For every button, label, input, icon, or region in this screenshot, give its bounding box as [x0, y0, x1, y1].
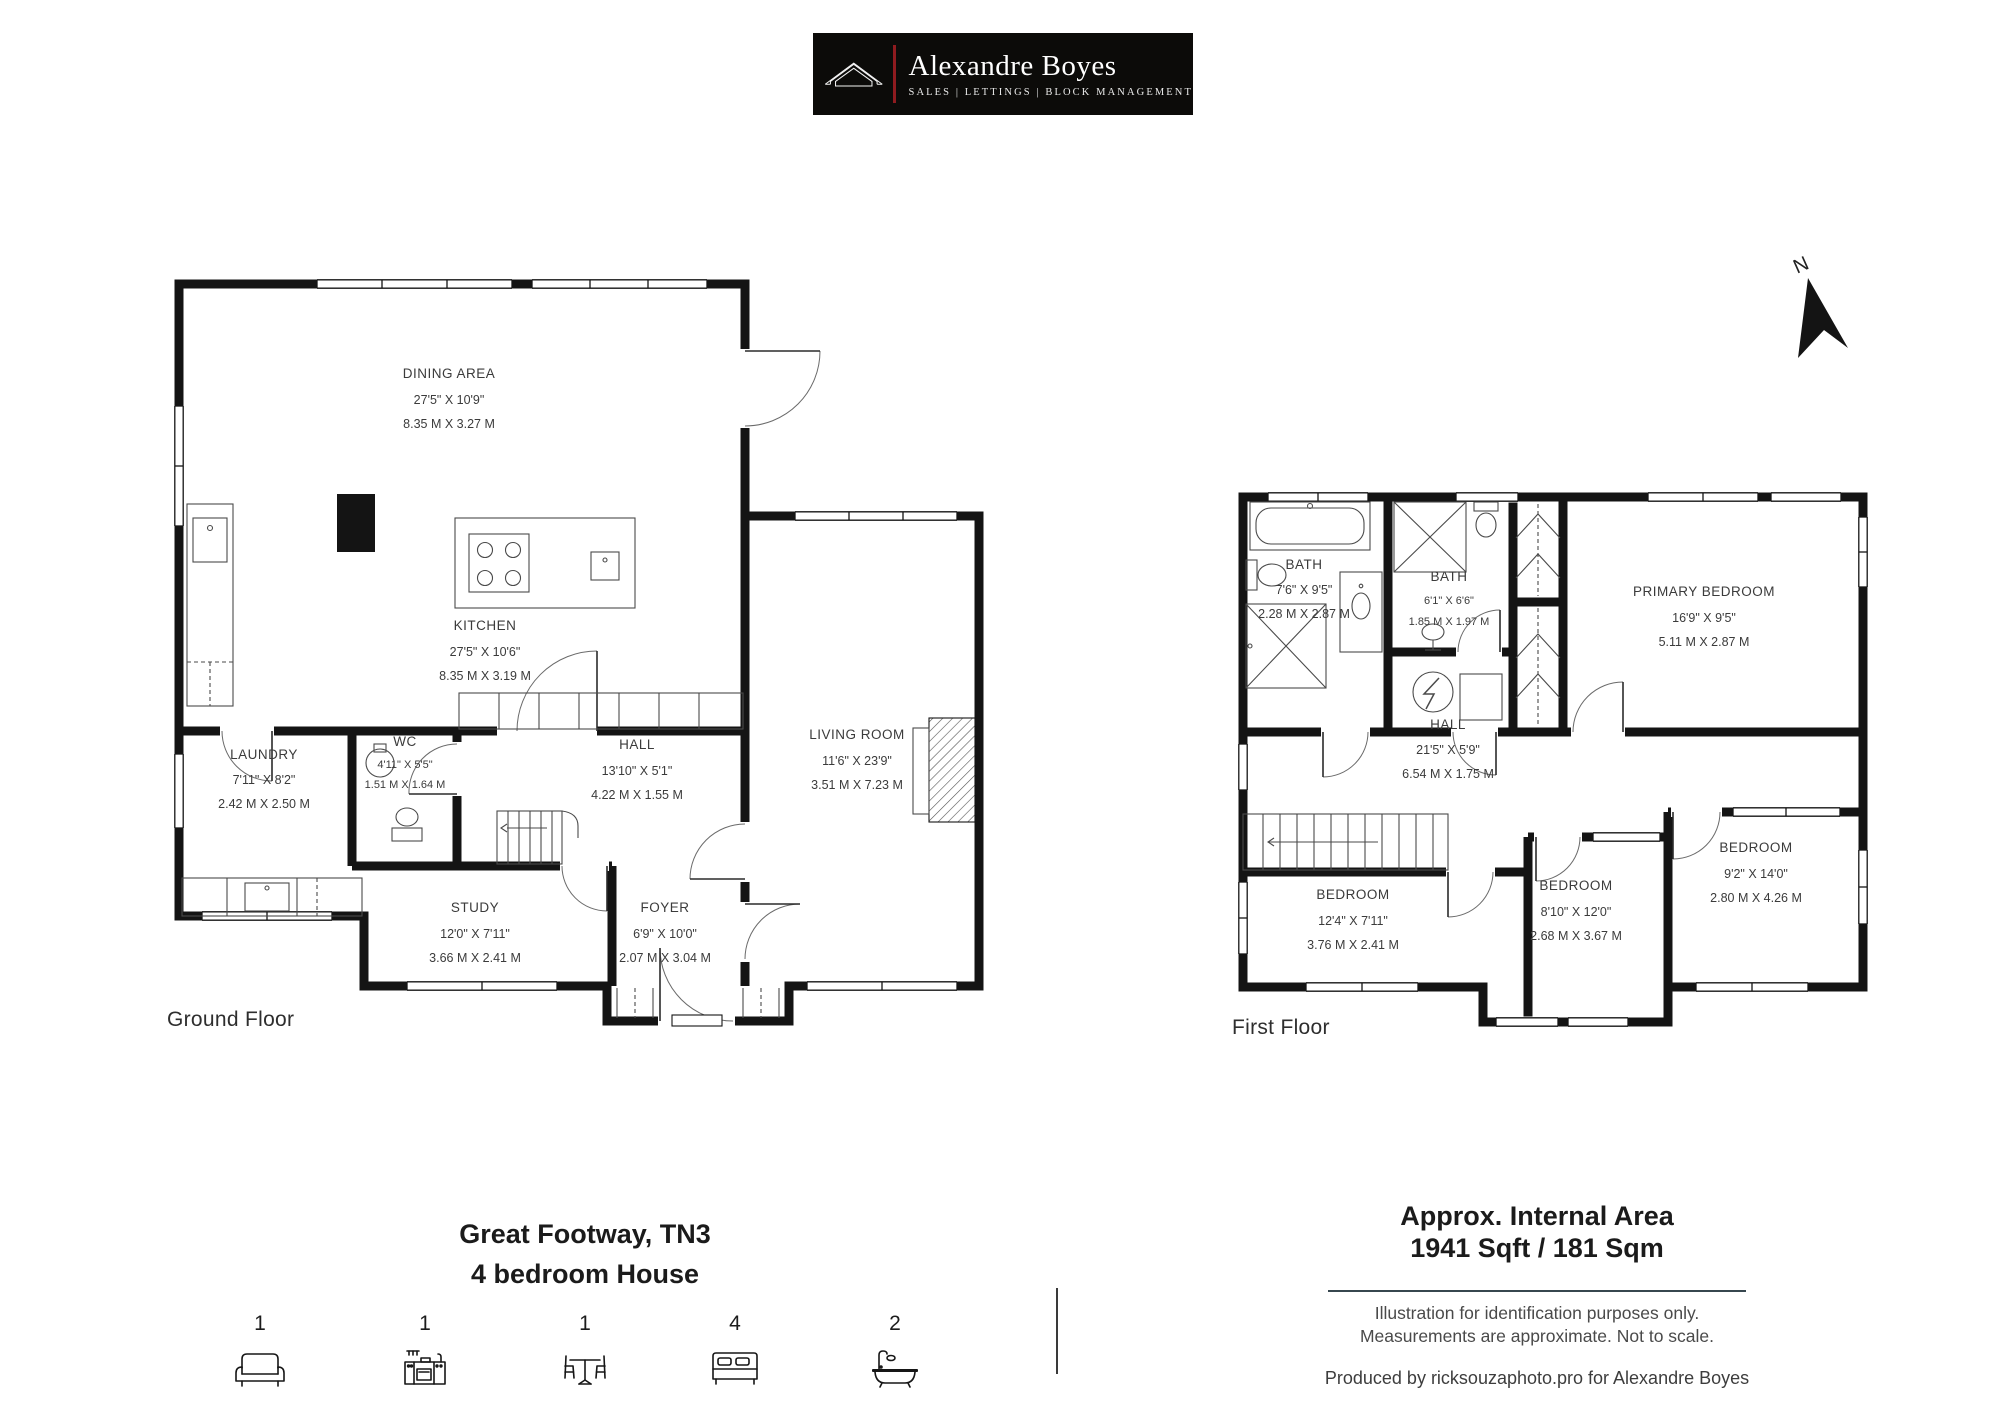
count-bathrooms: 2: [847, 1312, 943, 1397]
svg-text:11'6" X 23'9": 11'6" X 23'9": [822, 754, 892, 768]
property-title: Great Footway, TN3 4 bedroom House: [335, 1214, 835, 1294]
svg-text:PRIMARY BEDROOM: PRIMARY BEDROOM: [1633, 584, 1775, 599]
svg-text:BEDROOM: BEDROOM: [1316, 887, 1389, 902]
svg-text:HALL: HALL: [1430, 717, 1466, 732]
count-dining: 1: [537, 1312, 633, 1397]
svg-text:2.42 M X 2.50 M: 2.42 M X 2.50 M: [218, 797, 310, 811]
svg-text:WC: WC: [393, 734, 417, 749]
roof-icon: [823, 43, 885, 105]
disclaimer-line1: Illustration for identification purposes…: [1277, 1302, 1797, 1325]
svg-text:6'1" X 6'6": 6'1" X 6'6": [1424, 595, 1474, 607]
svg-text:HALL: HALL: [619, 737, 655, 752]
chimney-stub: [337, 494, 375, 552]
area-block: Approx. Internal Area 1941 Sqft / 181 Sq…: [1277, 1200, 1797, 1389]
floorplan-page: Alexandre Boyes SALES | LETTINGS | BLOCK…: [0, 0, 2000, 1414]
svg-text:7'11" X 8'2": 7'11" X 8'2": [233, 773, 296, 787]
svg-text:BATH: BATH: [1430, 569, 1467, 584]
svg-text:BATH: BATH: [1285, 557, 1322, 572]
svg-text:3.76 M X 2.41 M: 3.76 M X 2.41 M: [1307, 938, 1399, 952]
kitchen-icon: [397, 1346, 453, 1392]
first-floor-plan: BATH 7'6" X 9'5" 2.28 M X 2.87 M BATH 6'…: [1228, 482, 1878, 1042]
svg-text:21'5" X 5'9": 21'5" X 5'9": [1416, 743, 1480, 757]
kitchen-count: 1: [377, 1312, 473, 1336]
room-label-bath-2: BATH 6'1" X 6'6" 1.85 M X 1.97 M: [1409, 569, 1490, 628]
count-kitchen: 1: [377, 1312, 473, 1397]
svg-text:LIVING ROOM: LIVING ROOM: [809, 727, 905, 742]
room-label-hall-first: HALL 21'5" X 5'9" 6.54 M X 1.75 M: [1402, 717, 1494, 781]
bed-icon: [707, 1346, 763, 1392]
svg-text:1.51 M X 1.64 M: 1.51 M X 1.64 M: [365, 779, 446, 791]
brand-name: Alexandre Boyes: [909, 50, 1194, 83]
ground-room-labels: DINING AREA 27'5" X 10'9" 8.35 M X 3.27 …: [218, 366, 905, 965]
svg-text:LAUNDRY: LAUNDRY: [230, 747, 298, 762]
ground-doors: [220, 349, 820, 1026]
dining-icon: [557, 1346, 613, 1392]
room-label-primary-bedroom: PRIMARY BEDROOM 16'9" X 9'5" 5.11 M X 2.…: [1633, 584, 1775, 649]
svg-text:2.68 M X 3.67 M: 2.68 M X 3.67 M: [1530, 929, 1622, 943]
svg-text:6'9" X 10'0": 6'9" X 10'0": [633, 927, 697, 941]
room-label-bedroom-left: BEDROOM 12'4" X 7'11" 3.76 M X 2.41 M: [1307, 887, 1399, 952]
svg-text:27'5" X 10'6": 27'5" X 10'6": [450, 645, 521, 659]
svg-text:4.22 M X 1.55 M: 4.22 M X 1.55 M: [591, 788, 683, 802]
svg-text:8.35 M X 3.19 M: 8.35 M X 3.19 M: [439, 669, 531, 683]
svg-text:BEDROOM: BEDROOM: [1539, 878, 1612, 893]
room-label-foyer: FOYER 6'9" X 10'0" 2.07 M X 3.04 M: [619, 900, 711, 965]
svg-text:FOYER: FOYER: [640, 900, 689, 915]
dining-count: 1: [537, 1312, 633, 1336]
room-label-laundry: LAUNDRY 7'11" X 8'2" 2.42 M X 2.50 M: [218, 747, 310, 811]
ground-floor-label: Ground Floor: [167, 1008, 294, 1032]
sofa-icon: [232, 1346, 288, 1392]
room-label-living-room: LIVING ROOM 11'6" X 23'9" 3.51 M X 7.23 …: [809, 727, 905, 792]
svg-text:2.80 M X 4.26 M: 2.80 M X 4.26 M: [1710, 891, 1802, 905]
room-label-bedroom-center: BEDROOM 8'10" X 12'0" 2.68 M X 3.67 M: [1530, 878, 1622, 943]
svg-text:7'6" X 9'5": 7'6" X 9'5": [1276, 583, 1333, 597]
area-rule: [1328, 1290, 1746, 1292]
svg-text:12'4" X 7'11": 12'4" X 7'11": [1318, 914, 1388, 928]
area-value: 1941 Sqft / 181 Sqm: [1277, 1232, 1797, 1264]
svg-text:2.07 M X 3.04 M: 2.07 M X 3.04 M: [619, 951, 711, 965]
count-bedrooms: 4: [687, 1312, 783, 1397]
svg-text:12'0" X 7'11": 12'0" X 7'11": [440, 927, 510, 941]
svg-text:4'11" X 5'5": 4'11" X 5'5": [377, 759, 432, 771]
logo-text: Alexandre Boyes SALES | LETTINGS | BLOCK…: [909, 50, 1194, 98]
svg-text:27'5" X 10'9": 27'5" X 10'9": [414, 393, 485, 407]
north-label: N: [1790, 253, 1812, 279]
svg-text:3.66 M X 2.41 M: 3.66 M X 2.41 M: [429, 951, 521, 965]
reception-count: 1: [212, 1312, 308, 1336]
svg-text:13'10" X 5'1": 13'10" X 5'1": [602, 764, 673, 778]
svg-text:DINING AREA: DINING AREA: [403, 366, 496, 381]
credit-line: Produced by ricksouzaphoto.pro for Alexa…: [1277, 1368, 1797, 1389]
ground-windows: [174, 279, 958, 992]
ground-walls: [179, 284, 979, 1021]
svg-text:5.11 M X 2.87 M: 5.11 M X 2.87 M: [1659, 635, 1750, 649]
room-label-dining-area: DINING AREA 27'5" X 10'9" 8.35 M X 3.27 …: [403, 366, 496, 431]
svg-text:6.54 M X 1.75 M: 6.54 M X 1.75 M: [1402, 767, 1494, 781]
brand-logo: Alexandre Boyes SALES | LETTINGS | BLOCK…: [813, 33, 1193, 115]
svg-text:STUDY: STUDY: [451, 900, 499, 915]
bathroom-count: 2: [847, 1312, 943, 1336]
footer-divider: [1056, 1288, 1058, 1374]
room-label-wc: WC 4'11" X 5'5" 1.51 M X 1.64 M: [365, 734, 446, 791]
svg-text:9'2" X 14'0": 9'2" X 14'0": [1724, 867, 1788, 881]
svg-text:16'9" X 9'5": 16'9" X 9'5": [1672, 611, 1736, 625]
svg-text:8'10" X 12'0": 8'10" X 12'0": [1541, 905, 1612, 919]
bedroom-count: 4: [687, 1312, 783, 1336]
svg-text:1.85 M X 1.97 M: 1.85 M X 1.97 M: [1409, 616, 1490, 628]
room-label-kitchen: KITCHEN 27'5" X 10'6" 8.35 M X 3.19 M: [439, 618, 531, 683]
svg-text:KITCHEN: KITCHEN: [454, 618, 517, 633]
svg-text:BEDROOM: BEDROOM: [1719, 840, 1792, 855]
count-reception: 1: [212, 1312, 308, 1397]
north-arrow-icon: N: [1786, 246, 1866, 371]
first-floor-label: First Floor: [1232, 1016, 1330, 1040]
property-type: 4 bedroom House: [335, 1254, 835, 1294]
room-label-study: STUDY 12'0" X 7'11" 3.66 M X 2.41 M: [429, 900, 521, 965]
bath-icon: [867, 1346, 923, 1392]
svg-text:2.28 M X 2.87 M: 2.28 M X 2.87 M: [1258, 607, 1350, 621]
disclaimer-line2: Measurements are approximate. Not to sca…: [1277, 1325, 1797, 1348]
property-address: Great Footway, TN3: [335, 1214, 835, 1254]
ground-floor-plan: DINING AREA 27'5" X 10'9" 8.35 M X 3.27 …: [167, 266, 987, 1036]
room-label-bedroom-right: BEDROOM 9'2" X 14'0" 2.80 M X 4.26 M: [1710, 840, 1802, 905]
svg-text:3.51 M X 7.23 M: 3.51 M X 7.23 M: [811, 778, 903, 792]
area-title: Approx. Internal Area: [1277, 1200, 1797, 1232]
brand-tagline: SALES | LETTINGS | BLOCK MANAGEMENT: [909, 87, 1194, 98]
logo-divider: [893, 45, 896, 103]
svg-text:8.35 M X 3.27 M: 8.35 M X 3.27 M: [403, 417, 495, 431]
room-label-hall-ground: HALL 13'10" X 5'1" 4.22 M X 1.55 M: [591, 737, 683, 802]
room-label-bath-1: BATH 7'6" X 9'5" 2.28 M X 2.87 M: [1258, 557, 1350, 621]
